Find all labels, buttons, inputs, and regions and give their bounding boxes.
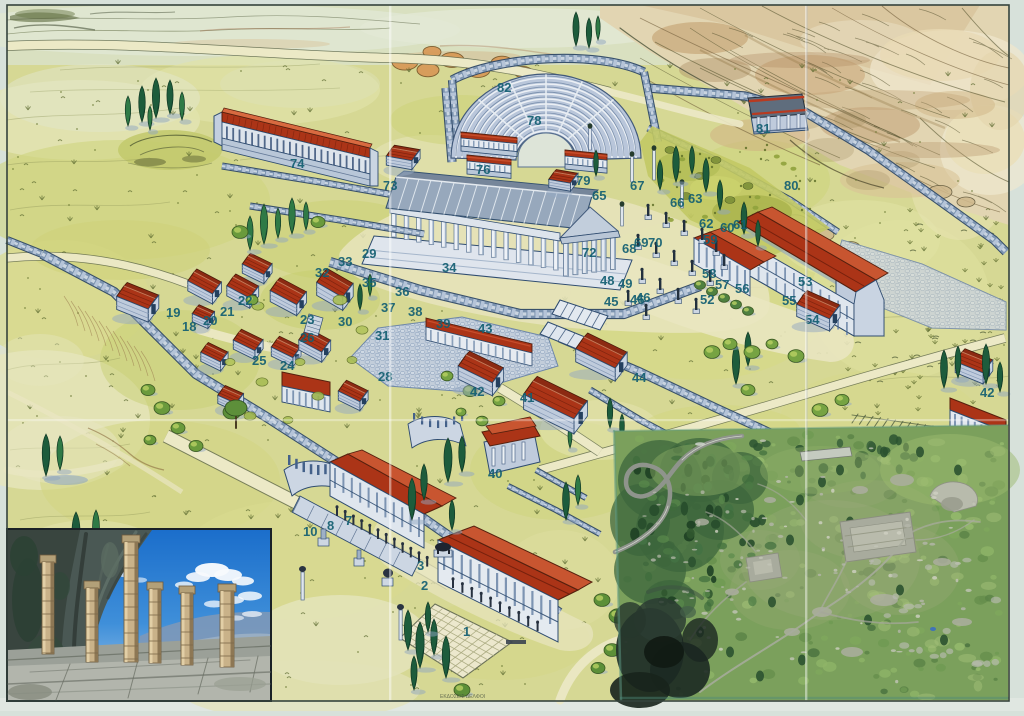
svg-text:55: 55 [782, 293, 796, 308]
svg-text:65: 65 [592, 188, 606, 203]
svg-text:79: 79 [576, 173, 590, 188]
svg-text:32: 32 [315, 265, 329, 280]
svg-text:2: 2 [421, 578, 428, 593]
svg-text:38: 38 [408, 304, 422, 319]
svg-text:29: 29 [362, 246, 376, 261]
svg-text:62: 62 [699, 216, 713, 231]
svg-text:26: 26 [300, 330, 314, 345]
svg-text:78: 78 [527, 113, 541, 128]
svg-text:61: 61 [733, 217, 747, 232]
svg-text:21: 21 [220, 304, 234, 319]
svg-text:80: 80 [784, 178, 798, 193]
svg-text:31: 31 [375, 328, 389, 343]
svg-text:52: 52 [700, 292, 714, 307]
svg-text:36: 36 [395, 284, 409, 299]
svg-text:76: 76 [476, 162, 490, 177]
svg-text:46: 46 [636, 290, 650, 305]
svg-text:18: 18 [182, 319, 196, 334]
svg-text:45: 45 [604, 294, 618, 309]
svg-text:66: 66 [670, 195, 684, 210]
svg-text:34: 34 [442, 260, 457, 275]
svg-text:43: 43 [478, 321, 492, 336]
svg-text:20: 20 [203, 313, 217, 328]
svg-text:42: 42 [980, 385, 994, 400]
svg-text:39: 39 [436, 316, 450, 331]
svg-text:69: 69 [634, 235, 648, 250]
svg-text:35: 35 [362, 275, 376, 290]
svg-text:56: 56 [735, 281, 749, 296]
svg-text:74: 74 [290, 156, 305, 171]
svg-text:67: 67 [630, 178, 644, 193]
svg-text:70: 70 [648, 235, 662, 250]
svg-text:41: 41 [520, 390, 534, 405]
svg-text:3: 3 [417, 558, 424, 573]
svg-text:42: 42 [470, 384, 484, 399]
svg-text:ΕΚΔΟΣΕΙΣ ΔΕΛΦΟΙ: ΕΚΔΟΣΕΙΣ ΔΕΛΦΟΙ [440, 694, 485, 700]
svg-text:8: 8 [327, 518, 334, 533]
svg-text:82: 82 [497, 80, 511, 95]
svg-text:23: 23 [300, 312, 314, 327]
svg-text:24: 24 [280, 358, 295, 373]
svg-text:58: 58 [702, 266, 716, 281]
svg-text:40: 40 [488, 466, 502, 481]
svg-text:33: 33 [338, 254, 352, 269]
svg-text:81: 81 [756, 121, 770, 136]
svg-text:72: 72 [582, 245, 596, 260]
svg-text:37: 37 [381, 300, 395, 315]
svg-text:22: 22 [238, 293, 252, 308]
svg-text:63: 63 [688, 191, 702, 206]
svg-text:25: 25 [252, 353, 266, 368]
svg-text:30: 30 [338, 314, 352, 329]
svg-text:19: 19 [166, 305, 180, 320]
svg-text:44: 44 [632, 370, 647, 385]
svg-text:59: 59 [703, 232, 717, 247]
svg-text:7: 7 [345, 513, 352, 528]
svg-text:57: 57 [715, 277, 729, 292]
svg-text:10: 10 [303, 524, 317, 539]
svg-text:1: 1 [463, 624, 470, 639]
svg-text:49: 49 [618, 276, 632, 291]
svg-text:48: 48 [600, 273, 614, 288]
